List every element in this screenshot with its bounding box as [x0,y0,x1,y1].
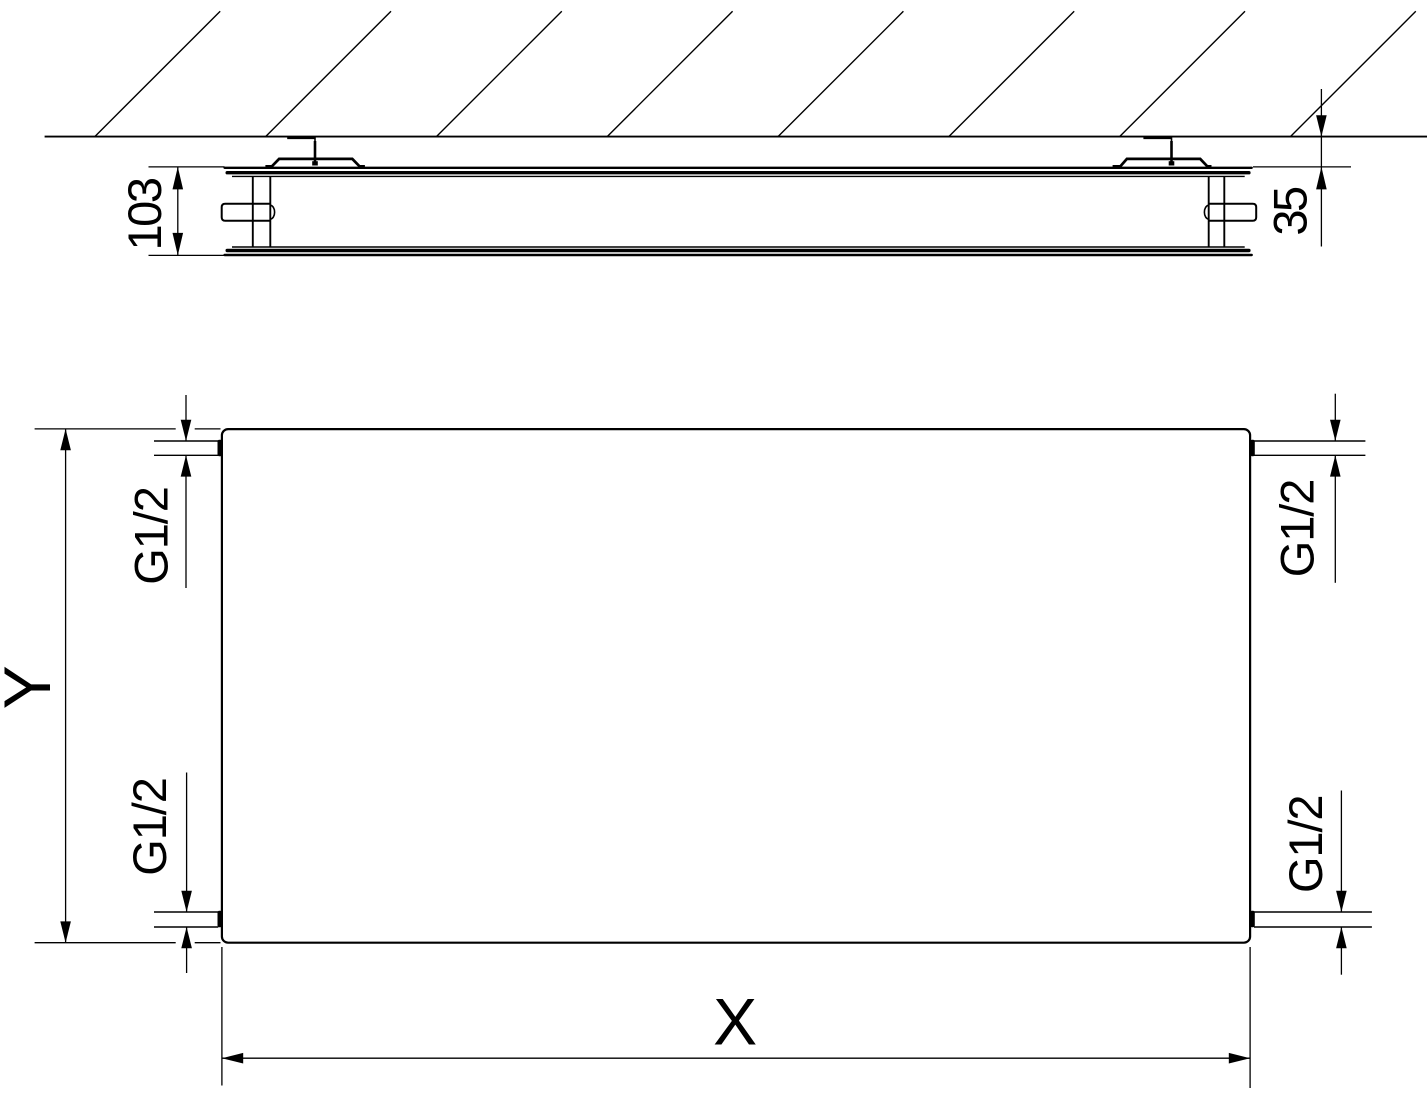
svg-text:103: 103 [118,178,171,250]
svg-text:35: 35 [1263,187,1316,236]
svg-text:G1/2: G1/2 [1279,796,1332,894]
svg-text:Y: Y [0,665,64,709]
svg-text:G1/2: G1/2 [124,487,177,585]
svg-text:X: X [713,985,757,1059]
svg-text:G1/2: G1/2 [1271,480,1324,578]
svg-text:G1/2: G1/2 [123,778,176,876]
